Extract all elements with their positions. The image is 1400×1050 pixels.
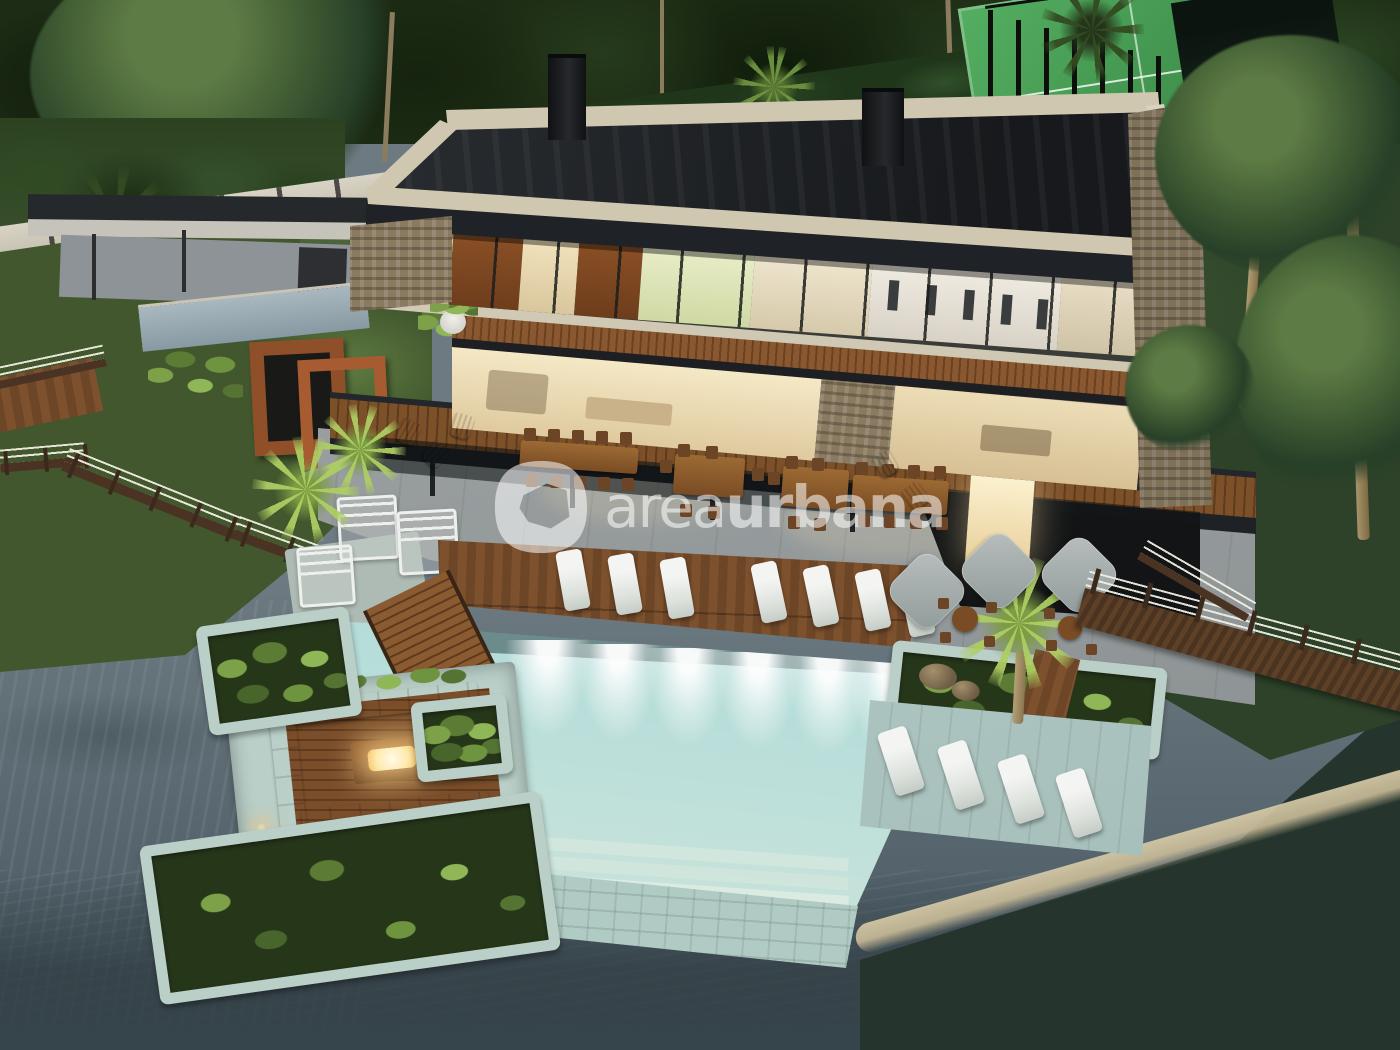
palm-tree-garden (252, 436, 360, 544)
bistro-chairs (938, 598, 949, 609)
fire-flame (367, 745, 417, 772)
rendering-canvas: areaurbana (0, 0, 1400, 1050)
interior-sofa (585, 396, 673, 426)
dining-chairs (524, 428, 536, 441)
tree-trunk (660, 0, 664, 95)
bistro-table (952, 606, 978, 632)
watermark-text-area: area (604, 473, 725, 541)
daybed (296, 544, 356, 608)
chimney (548, 58, 586, 140)
interior-dining-set (485, 370, 548, 415)
planter (195, 606, 363, 736)
watermark: areaurbana (492, 458, 944, 556)
chimney (862, 92, 904, 166)
bistro-chairs (1044, 608, 1055, 619)
canopy-column (92, 234, 96, 300)
areaurbana-logo-icon (492, 458, 590, 556)
planter (410, 693, 514, 783)
canopy-column (182, 230, 186, 292)
landscape-rock (951, 679, 981, 702)
watermark-text-urbana: urbana (725, 473, 944, 541)
watermark-text: areaurbana (604, 478, 944, 536)
interior-table-chairs (980, 424, 1052, 456)
tree-canopy-right (1125, 325, 1255, 455)
